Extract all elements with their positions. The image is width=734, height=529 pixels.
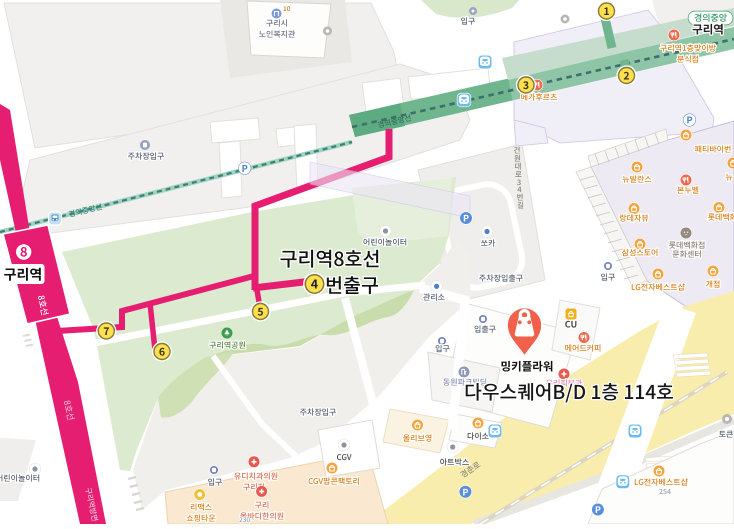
svg-text:관리소: 관리소 [423,292,445,303]
svg-text:구리역공원: 구리역공원 [209,340,246,351]
svg-text:어린이놀이터: 어린이놀이터 [0,473,40,484]
svg-text:뉴: 뉴 [725,172,732,183]
svg-text:10: 10 [283,3,291,13]
svg-text:6: 6 [159,345,165,360]
svg-text:LG전자베스트샵: LG전자베스트샵 [631,282,686,293]
svg-text:주차장입구: 주차장입구 [128,151,165,162]
svg-text:1: 1 [603,4,609,19]
svg-text:CU: CU [565,318,577,331]
svg-text:리맥스: 리맥스 [190,502,212,513]
svg-text:패티바이번: 패티바이번 [695,144,732,155]
svg-text:입구: 입구 [435,344,450,355]
svg-text:롯데백화점: 롯데백화점 [708,212,734,223]
svg-text:개점: 개점 [706,279,721,290]
svg-text:길: 길 [517,200,524,211]
svg-text:유디치과의원: 유디치과의원 [234,471,278,482]
svg-text:구리역8호선: 구리역8호선 [280,243,381,272]
svg-text:쏘카: 쏘카 [481,238,496,249]
svg-text:삼성스토어: 삼성스토어 [622,248,659,259]
svg-text:구리시: 구리시 [266,18,288,29]
svg-text:7: 7 [103,324,109,339]
svg-text:4: 4 [311,274,319,293]
svg-text:입구: 입구 [601,272,616,283]
svg-text:입출구: 입출구 [474,324,496,335]
svg-text:토큰: 토큰 [719,429,734,440]
svg-text:주차장입구: 주차장입구 [300,407,337,418]
svg-text:랑데자뷰: 랑데자뷰 [619,213,648,224]
svg-text:분식점: 분식점 [677,54,699,65]
svg-text:노인복지관: 노인복지관 [259,29,296,40]
svg-text:입구: 입구 [461,16,476,27]
svg-text:번출구: 번출구 [325,270,379,299]
svg-text:뉴발란스: 뉴발란스 [622,174,651,185]
svg-text:입구: 입구 [208,477,223,488]
svg-text:주차장입출구: 주차장입출구 [479,273,523,284]
svg-text:3: 3 [523,78,529,93]
svg-text:올리브영: 올리브영 [403,433,432,444]
svg-text:구리역: 구리역 [692,22,724,38]
svg-text:2: 2 [623,69,629,84]
svg-text:다이소: 다이소 [467,431,489,442]
svg-text:구리역1층맞이방: 구리역1층맞이방 [660,43,717,54]
svg-text:다우스퀘어B/D 1층 114호: 다우스퀘어B/D 1층 114호 [464,377,674,405]
svg-text:본누벨: 본누벨 [677,185,699,196]
svg-text:문화센터: 문화센터 [672,249,701,260]
svg-text:밍키플라워: 밍키플라워 [501,359,554,375]
svg-text:8: 8 [20,242,28,261]
svg-text:254: 254 [659,487,671,497]
svg-text:쇼핑타운: 쇼핑타운 [186,513,215,524]
svg-text:230: 230 [239,514,250,524]
svg-text:메어드커피: 메어드커피 [565,343,602,354]
svg-text:구리역: 구리역 [4,265,43,285]
svg-text:5: 5 [257,305,263,320]
svg-text:CGV팝콘팩토리: CGV팝콘팩토리 [308,476,360,487]
svg-text:구리: 구리 [255,500,270,511]
svg-text:CGV: CGV [336,452,351,463]
